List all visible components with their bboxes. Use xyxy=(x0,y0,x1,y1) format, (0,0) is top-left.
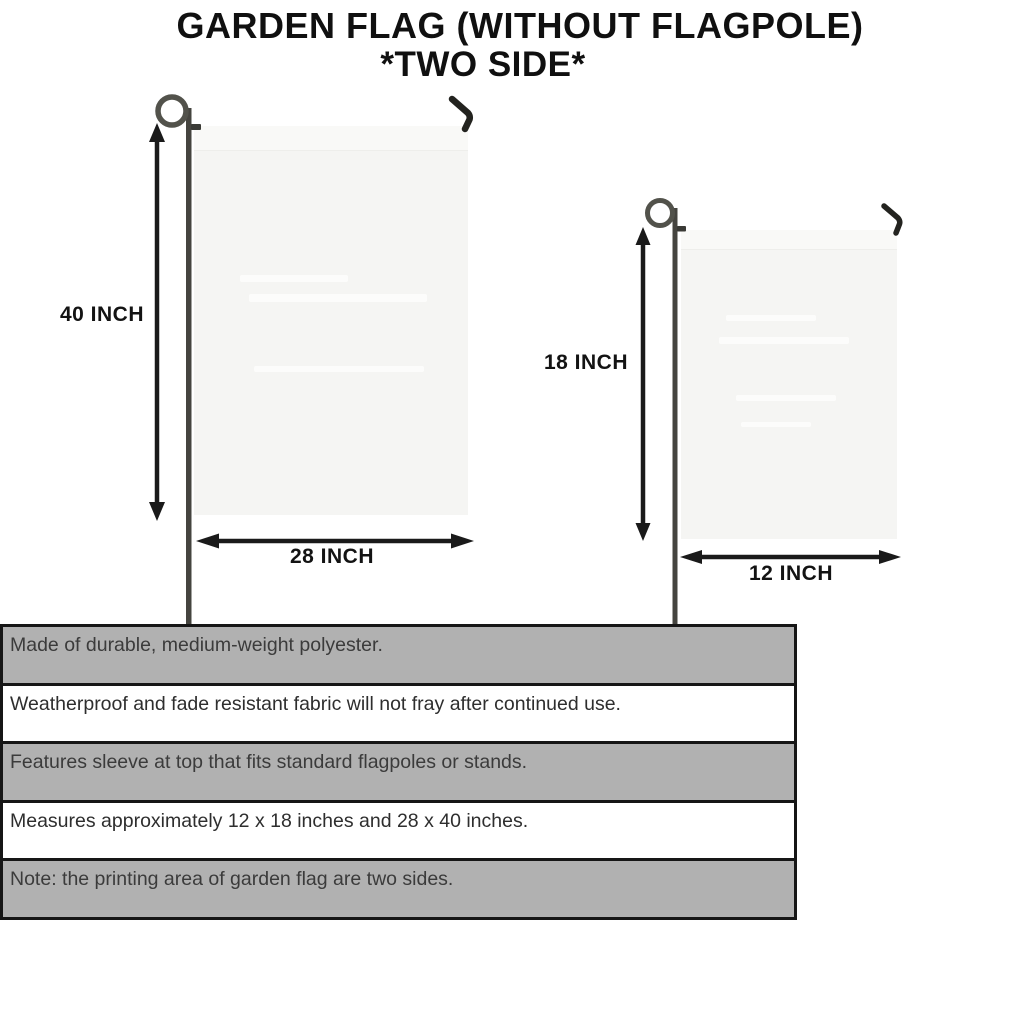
fabric-smudge xyxy=(736,395,836,401)
flag-small-sleeve xyxy=(681,230,897,250)
feature-row: Measures approximately 12 x 18 inches an… xyxy=(3,803,794,862)
feature-row: Weatherproof and fade resistant fabric w… xyxy=(3,686,794,745)
hanger-hook-icon xyxy=(452,99,470,129)
fabric-smudge xyxy=(719,337,849,344)
fabric-smudge xyxy=(240,275,348,282)
title-line2: *TWO SIDE* xyxy=(0,46,1024,84)
large-height-arrow xyxy=(149,123,165,521)
fabric-smudge xyxy=(254,366,424,372)
flag-small xyxy=(681,230,897,539)
fabric-smudge xyxy=(741,422,811,427)
small-flag-height-label: 18 INCH xyxy=(524,351,628,375)
pole-loop-icon xyxy=(648,201,673,226)
small-height-arrow xyxy=(636,227,651,541)
hanger-hook-icon xyxy=(884,206,900,233)
features-table: Made of durable, medium-weight polyester… xyxy=(0,624,797,920)
feature-row: Note: the printing area of garden flag a… xyxy=(3,861,794,917)
fabric-smudge xyxy=(249,294,427,302)
feature-row: Made of durable, medium-weight polyester… xyxy=(3,627,794,686)
flag-large-sleeve xyxy=(194,126,468,151)
large-flag-height-label: 40 INCH xyxy=(40,303,144,327)
pole-loop-icon xyxy=(158,97,186,125)
large-flag-width-label: 28 INCH xyxy=(234,545,430,569)
garden-flag-size-diagram: GARDEN FLAG (WITHOUT FLAGPOLE) *TWO SIDE… xyxy=(0,0,1024,1024)
fabric-smudge xyxy=(726,315,816,321)
pole-small xyxy=(673,208,678,624)
page-title: GARDEN FLAG (WITHOUT FLAGPOLE) *TWO SIDE… xyxy=(0,5,1024,84)
feature-row: Features sleeve at top that fits standar… xyxy=(3,744,794,803)
title-line1: GARDEN FLAG (WITHOUT FLAGPOLE) xyxy=(16,5,1024,46)
small-flag-width-label: 12 INCH xyxy=(693,562,889,586)
pole-large xyxy=(186,108,192,624)
flag-large xyxy=(194,126,468,515)
